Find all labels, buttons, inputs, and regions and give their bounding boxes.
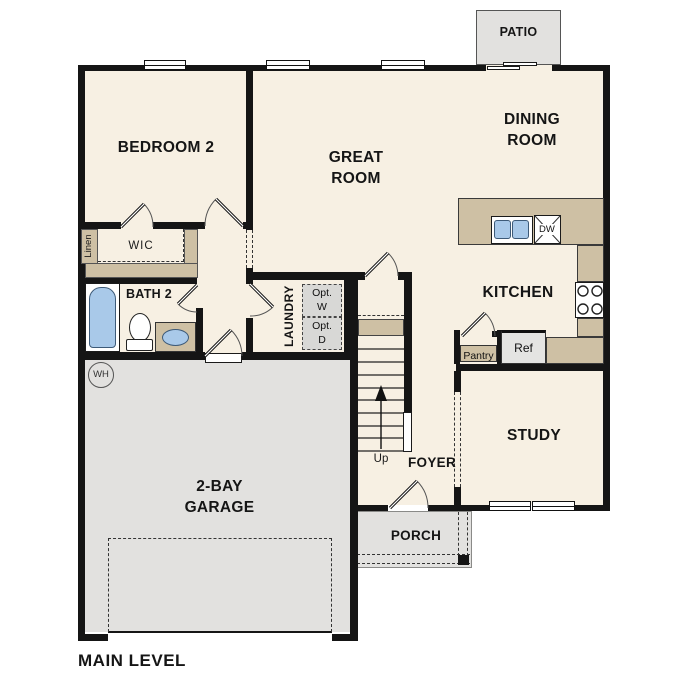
- optional-dryer-label: Opt. D: [309, 320, 335, 347]
- optional-washer-label: Opt. W: [309, 287, 335, 314]
- window-study-2: [532, 501, 575, 511]
- stair-side-opening: [403, 412, 412, 452]
- patio-slider-panel-1: [487, 66, 520, 70]
- wall-bedroom-south-1: [78, 222, 121, 229]
- pantry-label: Pantry: [463, 350, 493, 362]
- bathtub: [89, 287, 116, 348]
- window-bedroom2: [144, 60, 186, 70]
- wall-right: [603, 65, 610, 511]
- refrigerator: Ref: [501, 330, 546, 364]
- kitchen-label: KITCHEN: [468, 283, 568, 304]
- patio-slider-panel-2: [503, 62, 537, 66]
- greatroom-label: GREAT ROOM: [316, 148, 396, 190]
- porch-dashed-right-inner: [458, 512, 459, 556]
- optional-washer: Opt. W: [302, 284, 342, 317]
- wall-garage-top-1: [78, 352, 205, 360]
- wall-greatroom-south: [253, 272, 350, 280]
- garage-label: 2-BAY GARAGE: [172, 477, 267, 519]
- up-label: Up: [367, 452, 395, 466]
- window-greatroom-2: [381, 60, 425, 70]
- garage-door-threshold: [108, 631, 332, 633]
- wic-label: WIC: [124, 239, 158, 253]
- porch-dashed-right-outer: [467, 512, 468, 556]
- stove: [575, 282, 604, 318]
- wall-garage-right: [350, 272, 358, 641]
- wic-wall-strip-vertical: [184, 229, 198, 264]
- toilet-tank: [126, 339, 153, 351]
- diningroom-label: DINING ROOM: [492, 110, 572, 152]
- wall-laundry-right: [344, 272, 350, 352]
- wall-stair-top-stub-right: [398, 272, 404, 280]
- bath2-label: BATH 2: [120, 286, 178, 303]
- wall-bottom-2: [428, 505, 490, 511]
- wic-wall-strip-horizontal: [85, 263, 198, 278]
- wall-hall-east-stub-bottom: [246, 318, 253, 352]
- porch-dashed-bottom-outer: [352, 563, 470, 564]
- stair-landing-dash: [358, 315, 404, 316]
- sink-basin-right: [512, 220, 529, 239]
- dishwasher: DW: [534, 215, 561, 244]
- wall-hall-east-stub-mid: [246, 268, 253, 284]
- optional-dryer: Opt. D: [302, 317, 342, 350]
- window-greatroom-1: [266, 60, 310, 70]
- kitchen-right-counter-upper: [577, 245, 604, 282]
- floor-plan: PATIO PORCH 2-BAY GARAGE WH: [0, 0, 687, 687]
- study-opening: [454, 392, 461, 487]
- vanity-sink: [162, 329, 189, 346]
- garage-door-dashed-right: [331, 538, 332, 632]
- linen-label: Linen: [83, 229, 95, 263]
- patio-label: PATIO: [476, 24, 561, 41]
- study-label: STUDY: [496, 426, 572, 447]
- wall-study-left-stub-top: [454, 371, 461, 392]
- sink-basin-left: [494, 220, 511, 239]
- pantry-label-box: Pantry: [460, 345, 497, 362]
- porch-label: PORCH: [386, 527, 446, 545]
- wall-stair-right: [404, 272, 412, 413]
- dishwasher-label: DW: [538, 224, 556, 235]
- porch-post: [458, 555, 469, 565]
- foyer-label: FOYER: [404, 454, 460, 472]
- laundry-label: LAUNDRY: [281, 280, 295, 352]
- hall-greatroom-opening: [246, 230, 253, 268]
- kitchen-bottom-counter: [546, 337, 604, 364]
- garage-entry-threshold: [205, 353, 242, 363]
- wall-garage-bottom-left: [78, 634, 108, 641]
- window-study-1: [489, 501, 531, 511]
- stair-landing: [358, 319, 404, 336]
- wall-bedroom-east: [246, 65, 253, 223]
- water-heater: WH: [88, 362, 114, 388]
- garage-door-dashed-left: [108, 538, 109, 632]
- toilet-bowl: [129, 313, 151, 342]
- plan-title: MAIN LEVEL: [78, 650, 298, 673]
- wall-study-left-stub-bottom: [454, 487, 461, 505]
- refrigerator-label: Ref: [514, 341, 533, 355]
- kitchen-sink: [491, 216, 533, 244]
- garage-door-dashed-top: [108, 538, 332, 539]
- wall-bedroom-south-2: [153, 222, 205, 229]
- wall-study-top: [456, 364, 610, 371]
- porch-dashed-bottom-inner: [352, 554, 470, 555]
- wall-garage-top-2: [242, 352, 358, 360]
- water-heater-label: WH: [93, 369, 109, 380]
- wall-stair-top-stub-left: [358, 272, 365, 280]
- bedroom2-label: BEDROOM 2: [96, 138, 236, 159]
- wall-bath-east: [196, 308, 203, 352]
- kitchen-right-counter-lower: [577, 318, 604, 337]
- wall-bottom-3: [574, 505, 610, 511]
- wall-bedroom-south-3: [243, 222, 253, 229]
- wic-dashed-bottom: [98, 261, 184, 262]
